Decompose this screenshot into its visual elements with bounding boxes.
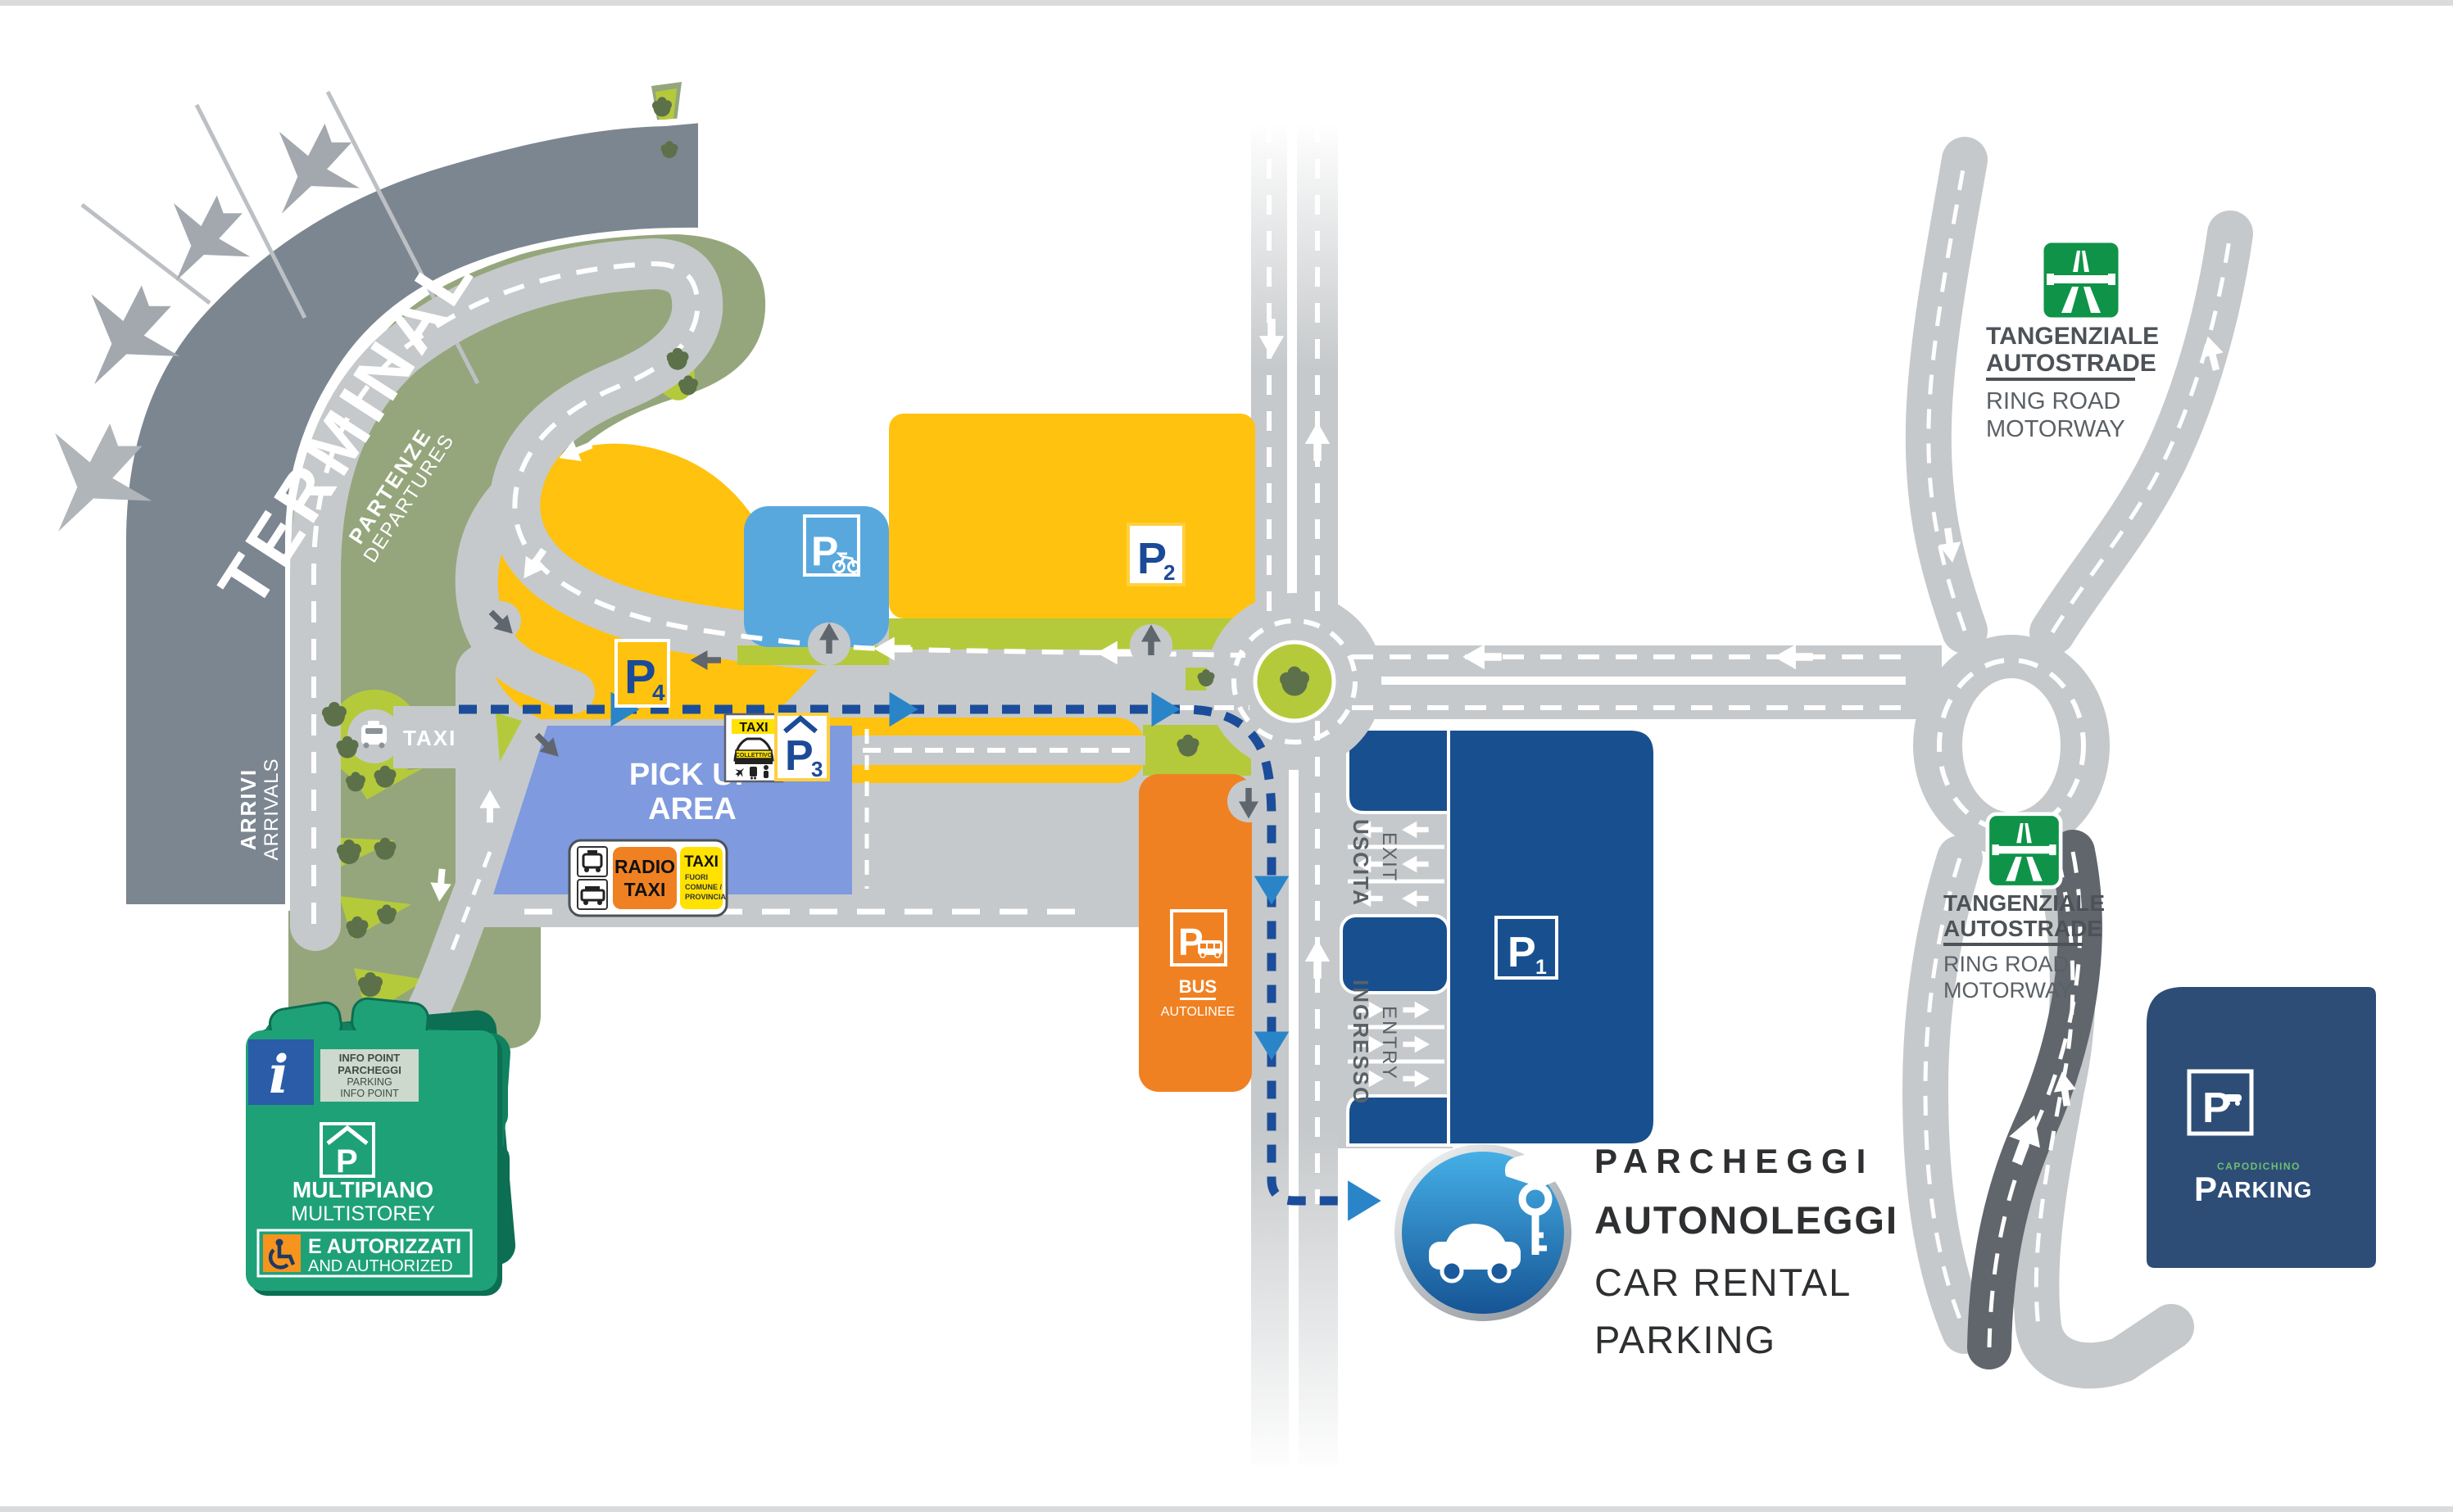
top-edge-bar bbox=[0, 0, 2453, 6]
taxi-extra-header: TAXI bbox=[684, 853, 719, 871]
multistorey-sign: i INFO POINT PARCHEGGI PARKING INFO POIN… bbox=[246, 997, 517, 1296]
taxi-collettivo-band: COLLETTIVO bbox=[736, 753, 773, 758]
mwy-bot-line2: AUTOSTRADE bbox=[1943, 916, 2102, 941]
taxi-extra-line3: PROVINCIA bbox=[685, 893, 727, 901]
p2-green-strip bbox=[889, 618, 1255, 650]
infopoint-line2: PARCHEGGI bbox=[338, 1064, 401, 1076]
p3-letter: P bbox=[785, 732, 814, 780]
capodichino-brand-rest: ARKING bbox=[2217, 1177, 2312, 1202]
taxi-van-icon bbox=[578, 880, 607, 909]
taxi-city-icon bbox=[578, 847, 607, 876]
garage-p-letter: P bbox=[336, 1143, 358, 1179]
p4-letter: P bbox=[624, 650, 656, 704]
infopoint-line4: INFO POINT bbox=[340, 1088, 399, 1099]
infopoint-line1: INFO POINT bbox=[339, 1052, 400, 1064]
taxi-collettivo-header: TAXI bbox=[739, 721, 768, 735]
mwy-top-line4: MOTORWAY bbox=[1986, 416, 2125, 442]
legend-line4: PARKING bbox=[1594, 1318, 1776, 1361]
p2-digit: 2 bbox=[1163, 560, 1175, 585]
taxi-stand-label: TAXI bbox=[403, 726, 456, 750]
uscita-label: USCITA bbox=[1349, 819, 1373, 907]
motorway-icon bbox=[2042, 241, 2120, 319]
bottom-edge-bar bbox=[0, 1506, 2453, 1512]
radio-taxi-sign: RADIO TAXI TAXI FUORI COMUNE / PROVINCIA bbox=[569, 840, 727, 916]
capodichino-parking-sign: P CAPODICHINO P ARKING bbox=[2147, 987, 2376, 1268]
sign-p3: P 3 bbox=[776, 714, 828, 781]
airport-parking-map: TERMINAL PARTENZE DEPARTURES ARRIVI ARRI… bbox=[0, 0, 2453, 1512]
terminal-arrivals: ARRIVALS bbox=[261, 758, 283, 861]
mwy-top-line3: RING ROAD bbox=[1986, 388, 2120, 414]
taxi-car-icon bbox=[361, 721, 387, 749]
motorway-icon bbox=[1988, 814, 2061, 887]
bus-subtitle: AUTOLINEE bbox=[1161, 1005, 1235, 1019]
mwy-bot-line1: TANGENZIALE bbox=[1943, 890, 2105, 916]
radio-taxi-line2: TAXI bbox=[624, 879, 666, 900]
authorized-it: E AUTORIZZATI bbox=[308, 1235, 461, 1258]
p1-digit: 1 bbox=[1535, 956, 1547, 979]
capodichino-brand-p: P bbox=[2194, 1170, 2217, 1208]
entry-label: ENTRY bbox=[1378, 1006, 1400, 1080]
p2-letter: P bbox=[1137, 534, 1167, 583]
exit-label: EXIT bbox=[1378, 832, 1400, 882]
p3-digit: 3 bbox=[811, 757, 823, 781]
bus-title: BUS bbox=[1179, 976, 1217, 997]
mwy-top-line2: AUTOSTRADE bbox=[1986, 350, 2156, 377]
taxi-extra-line2: COMUNE / bbox=[685, 883, 722, 891]
taxi-collettivo-sign: TAXI COLLETTIVO bbox=[725, 714, 782, 781]
infopoint-line3: PARKING bbox=[347, 1076, 392, 1088]
bus-parking-area bbox=[1139, 774, 1270, 1092]
ingresso-label: INGRESSO bbox=[1349, 980, 1373, 1105]
sign-p2: P 2 bbox=[1128, 524, 1184, 585]
bus-icon bbox=[1198, 940, 1222, 957]
capodichino-sign-letter: P bbox=[2202, 1084, 2231, 1132]
p4-digit: 4 bbox=[652, 680, 665, 705]
legend-line3: CAR RENTAL bbox=[1594, 1261, 1852, 1304]
taxi-extra-line1: FUORI bbox=[685, 873, 708, 881]
pickup-line2: AREA bbox=[648, 792, 737, 826]
capodichino-brand-top: CAPODICHINO bbox=[2217, 1161, 2301, 1172]
mwy-bot-line4: MOTORWAY bbox=[1943, 978, 2073, 1003]
legend-line2: AUTONOLEGGI bbox=[1594, 1198, 1898, 1242]
info-icon-glyph: i bbox=[269, 1044, 288, 1106]
multistorey-title-it: MULTIPIANO bbox=[292, 1177, 433, 1202]
mwy-bot-line3: RING ROAD bbox=[1943, 952, 2069, 976]
terminal-arrivi: ARRIVI bbox=[236, 768, 261, 850]
mwy-top-line1: TANGENZIALE bbox=[1986, 323, 2159, 350]
legend-line1: PARCHEGGI bbox=[1594, 1142, 1874, 1180]
parking-area-p2 bbox=[889, 414, 1255, 618]
p1-letter: P bbox=[1508, 929, 1536, 976]
authorized-en: AND AUTHORIZED bbox=[308, 1257, 453, 1275]
sign-p4: P 4 bbox=[616, 641, 669, 706]
radio-taxi-line1: RADIO bbox=[614, 856, 675, 877]
multistorey-title-en: MULTISTOREY bbox=[291, 1202, 435, 1225]
roundabout bbox=[1206, 593, 1383, 770]
